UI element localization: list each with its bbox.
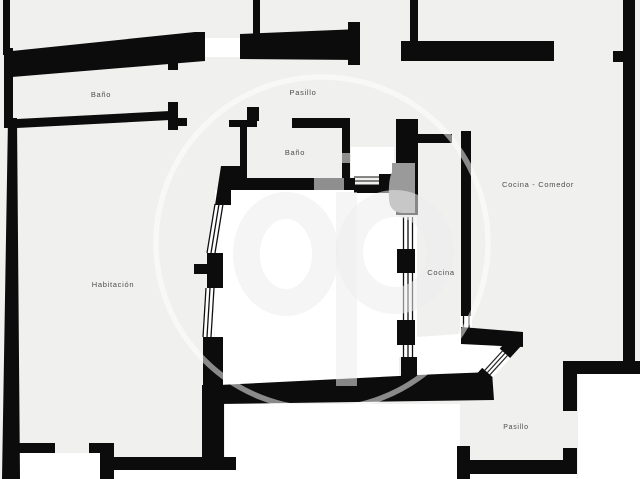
svg-text:Baño: Baño	[91, 90, 111, 99]
svg-text:Habitación: Habitación	[92, 280, 134, 289]
svg-text:Baño: Baño	[285, 148, 305, 157]
svg-text:Cocina - Comedor: Cocina - Comedor	[502, 180, 574, 189]
svg-text:Cocina: Cocina	[427, 268, 455, 277]
svg-text:Pasillo: Pasillo	[503, 424, 529, 431]
svg-text:Pasillo: Pasillo	[290, 88, 317, 97]
